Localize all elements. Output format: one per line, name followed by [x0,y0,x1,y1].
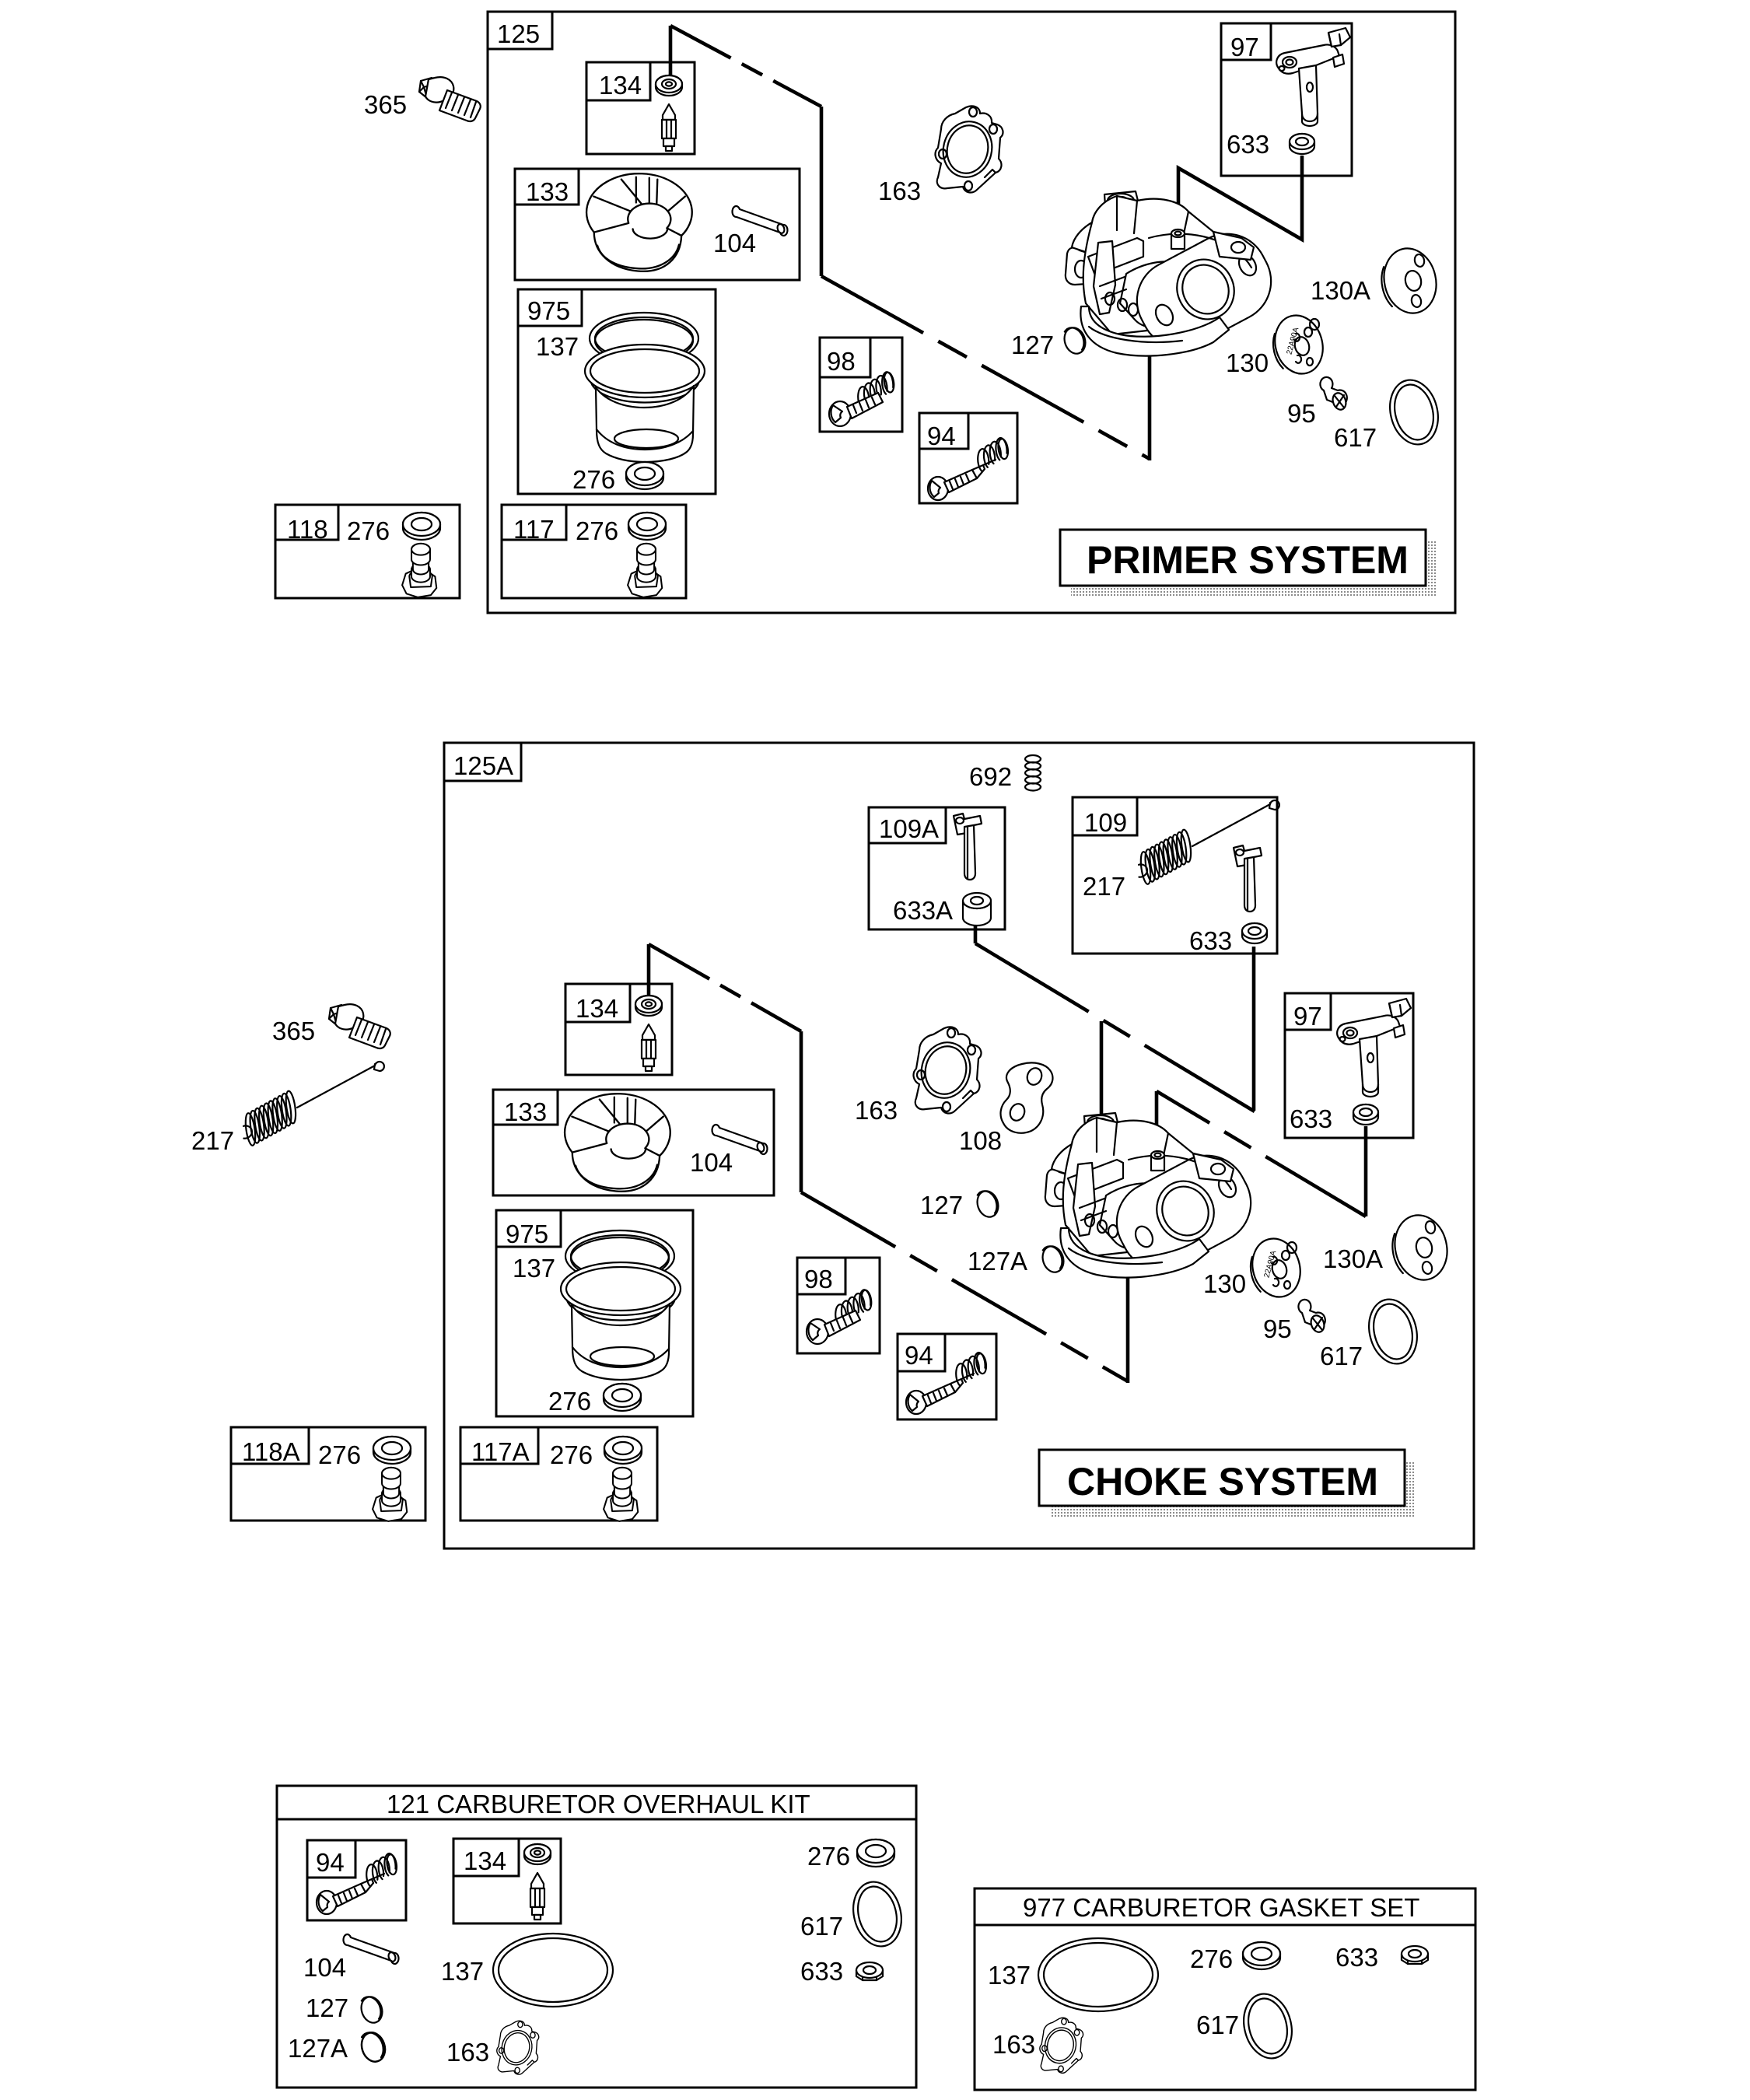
svg-text:97: 97 [1293,1002,1322,1031]
svg-text:276: 276 [572,465,615,494]
svg-text:94: 94 [316,1848,345,1877]
svg-text:617: 617 [1196,2011,1239,2039]
svg-text:133: 133 [526,177,569,206]
svg-text:117: 117 [513,515,555,544]
svg-text:276: 276 [550,1440,593,1469]
svg-text:217: 217 [191,1126,234,1155]
svg-text:137: 137 [441,1957,484,1986]
svg-text:975: 975 [506,1220,548,1248]
svg-text:94: 94 [927,422,956,450]
svg-text:276: 276 [576,516,618,545]
svg-text:633: 633 [1227,130,1269,159]
svg-text:633A: 633A [893,896,953,925]
svg-text:134: 134 [599,71,642,100]
svg-text:108: 108 [959,1126,1002,1155]
svg-text:127: 127 [1011,331,1054,359]
svg-text:365: 365 [272,1017,315,1045]
svg-text:134: 134 [464,1846,506,1875]
svg-text:617: 617 [1320,1342,1363,1370]
svg-text:109A: 109A [879,814,939,843]
svg-text:130: 130 [1226,348,1269,377]
svg-text:121 CARBURETOR OVERHAUL KIT: 121 CARBURETOR OVERHAUL KIT [387,1790,810,1818]
svg-text:118: 118 [287,515,328,544]
svg-text:127: 127 [306,1993,348,2022]
svg-text:125A: 125A [453,751,513,780]
svg-text:163: 163 [855,1096,898,1125]
svg-text:276: 276 [347,516,390,545]
svg-text:118A: 118A [242,1437,300,1466]
svg-text:97: 97 [1230,33,1259,61]
svg-text:127: 127 [920,1191,963,1220]
svg-text:104: 104 [690,1148,733,1177]
svg-text:692: 692 [969,762,1012,791]
svg-text:117A: 117A [471,1437,530,1466]
svg-text:133: 133 [504,1097,547,1126]
svg-text:130A: 130A [1323,1244,1383,1273]
svg-text:217: 217 [1083,872,1125,901]
svg-text:125: 125 [497,19,540,48]
svg-text:365: 365 [364,90,407,119]
svg-text:633: 633 [800,1957,843,1986]
svg-text:977 CARBURETOR GASKET SET: 977 CARBURETOR GASKET SET [1023,1893,1419,1922]
svg-text:134: 134 [576,994,618,1023]
svg-text:163: 163 [446,2038,489,2067]
svg-text:137: 137 [536,332,579,361]
svg-text:127A: 127A [968,1247,1027,1276]
svg-text:633: 633 [1335,1943,1378,1972]
svg-text:276: 276 [548,1387,591,1416]
svg-text:104: 104 [713,229,756,257]
svg-text:137: 137 [988,1961,1031,1990]
svg-text:94: 94 [905,1341,933,1370]
svg-text:276: 276 [1190,1944,1233,1973]
svg-text:137: 137 [513,1254,555,1283]
svg-text:276: 276 [807,1842,850,1871]
svg-text:CHOKE SYSTEM: CHOKE SYSTEM [1067,1460,1378,1503]
svg-text:633: 633 [1290,1104,1332,1133]
svg-text:104: 104 [303,1953,346,1982]
svg-text:98: 98 [827,347,856,376]
svg-text:276: 276 [318,1440,361,1469]
svg-text:98: 98 [804,1265,833,1293]
svg-text:130: 130 [1203,1269,1246,1298]
svg-text:130A: 130A [1311,276,1370,305]
svg-text:975: 975 [527,296,570,325]
svg-text:163: 163 [878,177,921,205]
svg-text:633: 633 [1189,926,1232,955]
svg-text:109: 109 [1084,808,1127,837]
svg-text:PRIMER SYSTEM: PRIMER SYSTEM [1087,538,1409,582]
svg-text:163: 163 [992,2030,1035,2059]
svg-text:617: 617 [800,1912,843,1941]
svg-text:95: 95 [1263,1314,1292,1343]
svg-text:127A: 127A [288,2034,348,2063]
svg-text:95: 95 [1287,399,1316,428]
svg-text:617: 617 [1334,423,1377,452]
